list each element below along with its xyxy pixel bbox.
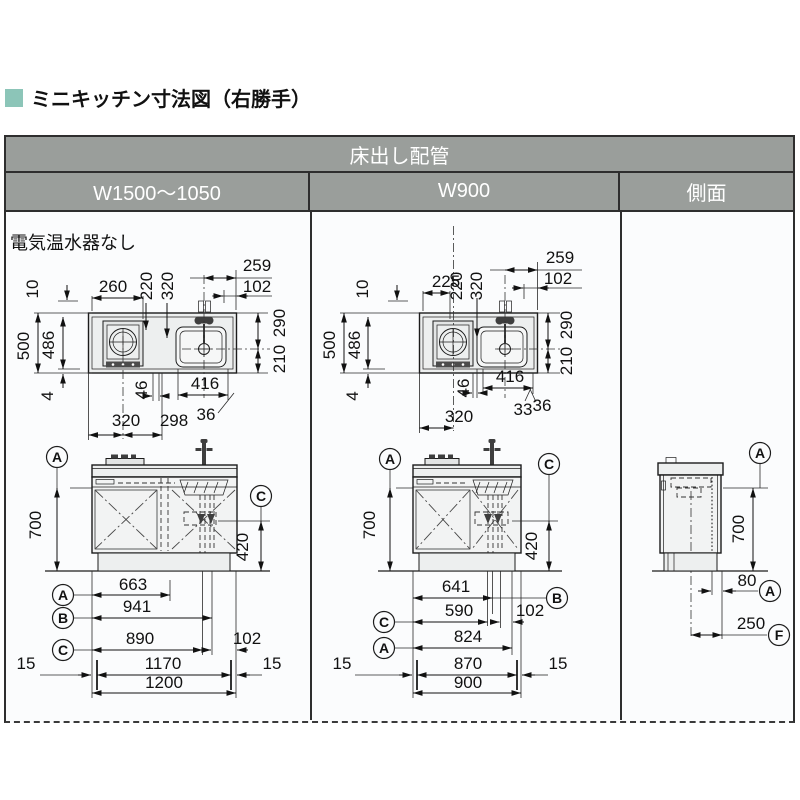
ref-label-a: A bbox=[755, 445, 765, 461]
w1500-bottom-dimensions: A 663 B 941 C bbox=[17, 571, 282, 698]
dim-320-bottom: 320 bbox=[112, 411, 140, 430]
ref-circle-c: C bbox=[539, 454, 560, 475]
dim-500: 500 bbox=[320, 331, 339, 359]
dim-500: 500 bbox=[14, 332, 33, 360]
dim-420: 420 bbox=[522, 532, 541, 560]
ref-circle-a: A bbox=[380, 449, 401, 470]
dim-102: 102 bbox=[243, 277, 271, 296]
column-header-w1500: W1500～1050 bbox=[6, 173, 310, 210]
dim-320-bottom: 320 bbox=[445, 407, 473, 426]
ref-circle-b-row: B bbox=[547, 588, 568, 609]
dim-663: 663 bbox=[119, 575, 147, 594]
page-title: ミニキッチン寸法図（右勝手） bbox=[31, 83, 311, 112]
dim-890: 890 bbox=[126, 629, 154, 648]
dim-15-right: 15 bbox=[263, 654, 282, 673]
ref-label-c: C bbox=[256, 488, 266, 504]
ref-label-a: A bbox=[385, 451, 395, 467]
dim-80: 80 bbox=[738, 571, 757, 590]
w1500-front-view: A 700 bbox=[26, 439, 272, 571]
dim-320-top: 320 bbox=[467, 272, 486, 300]
ref-circle-c-row: C bbox=[374, 612, 395, 633]
ref-label-a: A bbox=[379, 640, 389, 656]
dim-416: 416 bbox=[191, 374, 219, 393]
dim-700: 700 bbox=[360, 511, 379, 539]
dim-700: 700 bbox=[26, 511, 45, 539]
ref-label-b: B bbox=[58, 610, 68, 626]
ref-circle-a-row: A bbox=[374, 638, 395, 659]
dim-641: 641 bbox=[442, 577, 470, 596]
dim-10: 10 bbox=[353, 280, 372, 299]
ref-label-a: A bbox=[58, 587, 68, 603]
ref-label-b: B bbox=[552, 590, 562, 606]
dim-220: 220 bbox=[447, 272, 466, 300]
dim-1200: 1200 bbox=[145, 673, 183, 692]
dim-260: 260 bbox=[99, 277, 127, 296]
page: ミニキッチン寸法図（右勝手） 床出し配管 W1500～1050 W900 側面 … bbox=[0, 0, 800, 800]
dim-102-bottom: 102 bbox=[233, 629, 261, 648]
dim-941: 941 bbox=[123, 597, 151, 616]
ref-circle-a-mid: A bbox=[760, 581, 781, 602]
dim-10: 10 bbox=[23, 280, 42, 299]
ref-circle-a-row: A bbox=[53, 585, 74, 606]
column-header-side: 側面 bbox=[620, 173, 793, 210]
dim-1170: 1170 bbox=[145, 654, 182, 673]
dim-210: 210 bbox=[270, 345, 289, 373]
ref-label-c: C bbox=[58, 642, 68, 658]
dim-15-left: 15 bbox=[17, 654, 36, 673]
dim-4: 4 bbox=[343, 391, 362, 400]
dim-220: 220 bbox=[137, 272, 156, 300]
ref-circle-c: C bbox=[251, 486, 272, 507]
dim-46: 46 bbox=[132, 381, 151, 400]
technical-drawing: 電気温水器なし bbox=[6, 212, 793, 720]
dim-46: 46 bbox=[454, 379, 473, 398]
dim-486: 486 bbox=[39, 331, 58, 359]
dim-824: 824 bbox=[454, 627, 482, 646]
dim-15-right: 15 bbox=[549, 654, 568, 673]
dim-590: 590 bbox=[445, 601, 473, 620]
dim-250: 250 bbox=[737, 614, 765, 633]
dim-102: 102 bbox=[544, 269, 572, 288]
w900-bottom-dimensions: 641 B C 590 102 bbox=[333, 571, 568, 698]
ref-label-c: C bbox=[544, 456, 554, 472]
ref-circle-b-row: B bbox=[53, 608, 74, 629]
dim-290: 290 bbox=[270, 309, 289, 337]
title-bar: ミニキッチン寸法図（右勝手） bbox=[5, 83, 311, 112]
side-view: A 700 bbox=[652, 443, 790, 646]
note-no-water-heater: 電気温水器なし bbox=[10, 233, 136, 253]
dim-900: 900 bbox=[454, 673, 482, 692]
dim-870: 870 bbox=[454, 654, 482, 673]
dim-259: 259 bbox=[546, 248, 574, 267]
dim-298: 298 bbox=[160, 411, 188, 430]
dim-320-top: 320 bbox=[158, 272, 177, 300]
ref-label-a: A bbox=[765, 583, 775, 599]
table-body: 電気温水器なし bbox=[6, 212, 793, 720]
dim-259: 259 bbox=[243, 256, 271, 275]
dim-486: 486 bbox=[345, 331, 364, 359]
ref-circle-c-row: C bbox=[53, 640, 74, 661]
ref-circle-a: A bbox=[47, 447, 68, 468]
dim-15-left: 15 bbox=[333, 654, 352, 673]
dim-4: 4 bbox=[38, 391, 57, 400]
dim-700: 700 bbox=[729, 515, 748, 543]
dim-102-bottom: 102 bbox=[516, 601, 544, 620]
column-header-w900: W900 bbox=[310, 173, 620, 210]
dim-290: 290 bbox=[557, 311, 576, 339]
ref-circle-a-top: A bbox=[750, 443, 771, 464]
w900-front-view: A 700 bbox=[360, 439, 562, 571]
dimension-table: 床出し配管 W1500～1050 W900 側面 電気温水器なし bbox=[4, 135, 795, 723]
ref-label-f: F bbox=[775, 627, 784, 643]
table-header-piping: 床出し配管 bbox=[6, 137, 793, 173]
dim-416: 416 bbox=[496, 367, 524, 386]
table-header-row: W1500～1050 W900 側面 bbox=[6, 173, 793, 212]
dim-210: 210 bbox=[557, 347, 576, 375]
ref-label-a: A bbox=[52, 449, 62, 465]
ref-label-c: C bbox=[379, 614, 389, 630]
ref-circle-f: F bbox=[769, 625, 790, 646]
dim-33: 33 bbox=[514, 400, 533, 419]
dim-420: 420 bbox=[233, 533, 252, 561]
dim-36: 36 bbox=[533, 396, 552, 415]
dim-36: 36 bbox=[197, 405, 216, 424]
title-bullet-icon bbox=[5, 89, 23, 107]
